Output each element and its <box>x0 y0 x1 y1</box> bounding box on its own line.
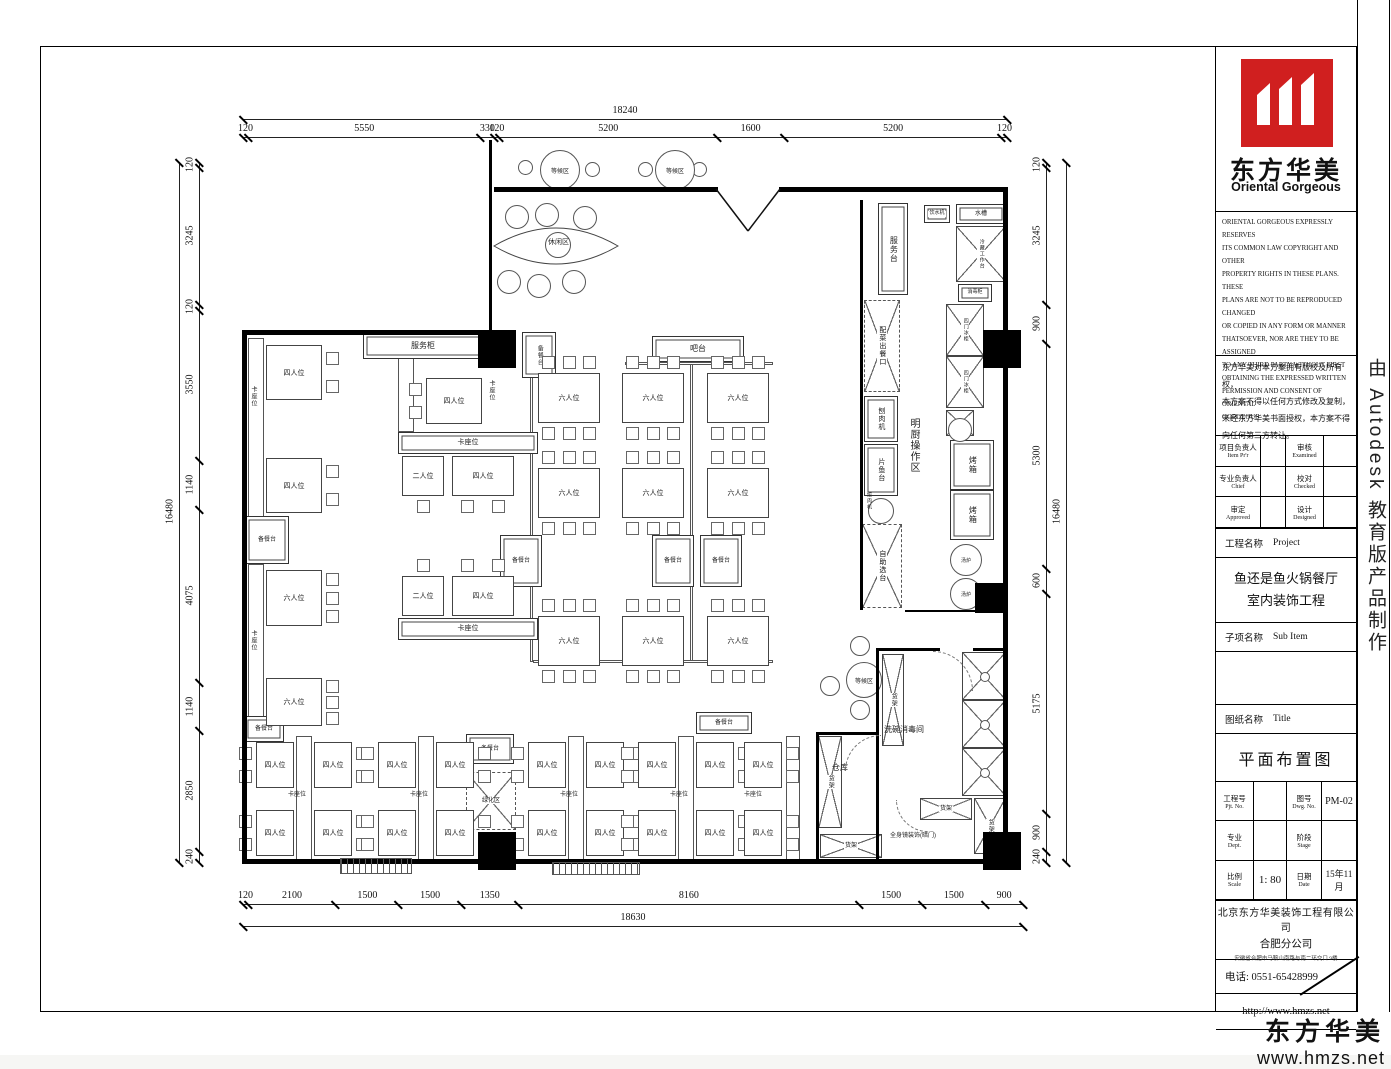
chair <box>647 427 660 440</box>
field-examined: 审核Examined <box>1286 436 1324 467</box>
counter: 消毒柜 <box>958 284 992 302</box>
field-approved-value <box>1261 497 1286 528</box>
counter: 备餐台 <box>696 712 752 734</box>
chair <box>621 770 634 783</box>
room-label: 卡座位 <box>249 386 258 407</box>
table: 四人位 <box>314 810 352 856</box>
stool-icon <box>585 162 600 177</box>
field-stage-value <box>1322 821 1356 860</box>
field-scale: 比例Scale <box>1216 861 1254 900</box>
oriental-gorgeous-logo-icon <box>1241 59 1333 147</box>
equipment-dashed: 自助选台 <box>862 524 902 608</box>
counter-label: 卡座位 <box>457 625 480 633</box>
dim-line <box>243 926 1023 927</box>
copyright-chinese: 东方华美对本方案拥有版权及所有权， 本方案不得以任何方式修改及复制， 未经东方华… <box>1216 356 1356 436</box>
footer-brand: 东方华美 www.hmzs.net <box>1185 1012 1385 1069</box>
counter: 备餐台 <box>652 535 694 587</box>
field-stage: 阶段Stage <box>1287 821 1322 860</box>
chair <box>326 380 339 393</box>
chair <box>563 599 576 612</box>
stool-icon <box>948 418 972 442</box>
chair <box>647 670 660 683</box>
chair <box>626 670 639 683</box>
chair <box>621 815 634 828</box>
equipment-box: 货架 <box>818 736 842 828</box>
dim-label: 120 <box>1032 139 1043 189</box>
dim-label: 18630 <box>608 912 658 923</box>
equipment-box: 货架 <box>820 834 882 858</box>
dim-line <box>243 137 1007 138</box>
counter: 备餐台 <box>700 535 742 587</box>
chair <box>409 383 422 396</box>
table: 四人位 <box>378 742 416 788</box>
counter-label: 吧台 <box>689 345 707 354</box>
chair <box>563 451 576 464</box>
chair <box>542 427 555 440</box>
field-checked: 校对Checked <box>1286 467 1324 498</box>
table: 四人位 <box>696 742 734 788</box>
footer-brand-url: www.hmzs.net <box>1185 1048 1385 1069</box>
field-checked-value <box>1324 467 1356 498</box>
chair <box>667 427 680 440</box>
counter-label: 服务柜 <box>410 342 436 351</box>
chair <box>361 770 374 783</box>
field-pjt-no-value <box>1254 782 1287 821</box>
counter-label: 服务台 <box>888 236 899 263</box>
room-label: 卡座位 <box>487 380 496 401</box>
leaf-planter-icon <box>492 224 620 268</box>
structural-column <box>983 330 1021 368</box>
chair <box>511 770 524 783</box>
equipment-box <box>962 700 1006 748</box>
chair <box>583 427 596 440</box>
dim-label: 8160 <box>664 890 714 901</box>
table: 六人位 <box>538 468 600 518</box>
field-dept-value <box>1254 821 1287 860</box>
chair <box>542 599 555 612</box>
counter: 备餐台 <box>522 332 556 378</box>
equipment-dashed-label: 自助选台 <box>877 550 887 582</box>
bench-seat <box>418 736 434 860</box>
wall <box>779 187 1008 192</box>
chair <box>409 406 422 419</box>
project-label-row: 工程名称Project <box>1216 529 1356 558</box>
equipment-box: 四门冰柜 <box>946 356 984 408</box>
chair <box>542 670 555 683</box>
field-item-value <box>1261 436 1286 467</box>
table: 四人位 <box>744 810 782 856</box>
company-section: 北京东方华美装饰工程有限公司 合肥分公司 安徽省合肥市马鞍山南路与南二环交口 9… <box>1216 901 1356 960</box>
table: 六人位 <box>707 373 769 423</box>
structural-column <box>983 832 1021 870</box>
stool-icon <box>638 162 653 177</box>
door-swing-arc <box>845 735 881 771</box>
counter-label: 备餐台 <box>254 726 274 733</box>
counter-label: 卡座位 <box>457 439 480 447</box>
counter-label: 饮水机 <box>928 211 945 217</box>
entrance-mat <box>340 858 412 874</box>
chair <box>626 451 639 464</box>
counter-label: 烤箱 <box>967 506 978 524</box>
dim-line <box>179 162 180 862</box>
faucet-icon <box>980 720 990 730</box>
chair <box>542 356 555 369</box>
chair <box>752 427 765 440</box>
chair <box>478 747 491 760</box>
chair <box>478 770 491 783</box>
dim-line <box>1046 162 1047 862</box>
dim-label: 2100 <box>267 890 317 901</box>
counter: 卡座位 <box>398 432 538 454</box>
dim-label: 4075 <box>185 570 196 620</box>
wall <box>816 732 878 735</box>
chair <box>711 451 724 464</box>
table: 六人位 <box>707 468 769 518</box>
counter-label: 备餐台 <box>257 537 277 544</box>
logo-section: 东方华美 Oriental Gorgeous <box>1216 47 1356 212</box>
chair <box>732 356 745 369</box>
chair <box>667 599 680 612</box>
equipment-box-label: 绿化区 <box>481 798 501 805</box>
equipment-box-label: 货架 <box>889 693 898 707</box>
chair <box>647 356 660 369</box>
table: 四人位 <box>436 742 474 788</box>
room-label: 卡座位 <box>410 789 428 798</box>
chair <box>417 500 430 513</box>
chair <box>647 599 660 612</box>
wall <box>876 648 940 651</box>
counter: 吧台 <box>652 336 744 362</box>
field-examined-value <box>1324 436 1356 467</box>
company-name: 北京东方华美装饰工程有限公司 <box>1216 904 1356 934</box>
chair <box>711 670 724 683</box>
table: 四人位 <box>696 810 734 856</box>
chair <box>786 838 799 851</box>
dim-label: 3245 <box>185 211 196 261</box>
chair <box>667 670 680 683</box>
chair <box>732 451 745 464</box>
room-label: 洗碗消毒间 <box>884 724 924 735</box>
structural-column <box>975 583 1005 613</box>
counter-label: 备餐台 <box>714 720 734 727</box>
field-dept: 专业Dept. <box>1216 821 1254 860</box>
faucet-icon <box>980 672 990 682</box>
table: 四人位 <box>426 378 482 424</box>
chair <box>478 815 491 828</box>
chair <box>326 680 339 693</box>
chair <box>563 522 576 535</box>
chair <box>511 747 524 760</box>
sheet-label-row: 图纸名称Title <box>1216 705 1356 734</box>
drawing-sheet: { "title_block": { "logo_cn": "东方华美", "l… <box>0 0 1391 1055</box>
chair <box>647 522 660 535</box>
room-label: 全身镜装饰(暗门) <box>890 830 936 839</box>
table: 六人位 <box>538 616 600 666</box>
counter-label: 备餐台 <box>711 558 731 565</box>
company-branch: 合肥分公司 <box>1216 936 1356 951</box>
structural-column <box>478 330 516 368</box>
chair <box>752 599 765 612</box>
stool-icon <box>850 700 870 720</box>
table: 四人位 <box>436 810 474 856</box>
equipment-box-label: 货架 <box>844 843 858 850</box>
chair <box>752 356 765 369</box>
chair <box>626 599 639 612</box>
counter: 饮水机 <box>924 205 950 223</box>
chair <box>752 670 765 683</box>
field-designed: 设计Designed <box>1286 497 1324 528</box>
room-label: 卡座位 <box>744 789 762 798</box>
dim-label: 1140 <box>185 681 196 731</box>
chair <box>732 427 745 440</box>
chair <box>563 356 576 369</box>
dim-label: 120 <box>185 139 196 189</box>
table: 四人位 <box>314 742 352 788</box>
chair <box>667 522 680 535</box>
dim-line <box>243 119 1007 120</box>
chair <box>583 522 596 535</box>
counter: 刨肉机 <box>864 396 898 442</box>
chair <box>361 838 374 851</box>
faucet-icon <box>980 768 990 778</box>
table: 四人位 <box>528 742 566 788</box>
counter-label: 备餐台 <box>663 558 683 565</box>
equipment-box: 四门冰柜 <box>946 304 984 356</box>
equipment-box <box>962 748 1006 796</box>
chair <box>563 427 576 440</box>
table: 四人位 <box>256 810 294 856</box>
dim-label: 1350 <box>465 890 515 901</box>
table: 四人位 <box>256 742 294 788</box>
table: 六人位 <box>622 468 684 518</box>
dim-label: 120 <box>221 890 271 901</box>
title-block: 东方华美 Oriental Gorgeous ORIENTAL GORGEOUS… <box>1215 46 1357 1012</box>
table: 四人位 <box>638 810 676 856</box>
chair <box>752 451 765 464</box>
dim-label: 5200 <box>868 123 918 134</box>
chair <box>583 356 596 369</box>
room-label: 卡座位 <box>560 789 578 798</box>
chair <box>711 427 724 440</box>
equipment-box-label: 货架 <box>939 806 953 813</box>
wall <box>242 330 247 864</box>
chair <box>563 670 576 683</box>
chair <box>621 838 634 851</box>
dim-label: 120 <box>185 282 196 332</box>
chair <box>786 747 799 760</box>
wall <box>816 732 819 862</box>
chair <box>326 712 339 725</box>
room-label: 绞肉机 <box>866 492 873 510</box>
stool-icon <box>562 270 586 294</box>
chair <box>711 599 724 612</box>
chair <box>492 559 505 572</box>
chair <box>621 747 634 760</box>
stool-icon <box>518 160 533 175</box>
counter: 服务台 <box>878 203 908 295</box>
round-table: 等候区 <box>540 150 580 190</box>
round-table: 汤炉 <box>950 544 982 576</box>
dim-label: 16480 <box>165 487 176 537</box>
dim-label: 3550 <box>185 360 196 410</box>
chair <box>647 451 660 464</box>
room-label: 卡座位 <box>288 789 306 798</box>
chair <box>326 696 339 709</box>
dim-label: 16480 <box>1052 487 1063 537</box>
field-dwg-no-value: PM-02 <box>1322 782 1356 821</box>
number-grid: 工程号Pjt. No. 图号Dwg. No. PM-02 专业Dept. 阶段S… <box>1216 782 1356 901</box>
counter-label: 水槽 <box>974 211 988 218</box>
equipment-box-label: 四门冰柜 <box>961 318 969 342</box>
dim-label: 900 <box>979 890 1029 901</box>
table: 四人位 <box>638 742 676 788</box>
chair <box>732 670 745 683</box>
bench-seat <box>530 362 533 662</box>
table: 四人位 <box>266 458 322 513</box>
door-swing-arc <box>896 800 928 832</box>
counter: 片鱼台 <box>864 444 898 496</box>
table: 四人位 <box>744 742 782 788</box>
stool-icon <box>820 676 840 696</box>
chair <box>461 500 474 513</box>
stool-icon <box>497 270 521 294</box>
equipment-dashed-label: 配菜出餐口 <box>877 326 887 366</box>
entrance-door-icon <box>714 188 782 234</box>
dim-label: 5550 <box>339 123 389 134</box>
dim-label: 600 <box>1032 556 1043 606</box>
drawing-title: 平面布置图 <box>1216 734 1356 782</box>
chair <box>511 815 524 828</box>
counter: 服务柜 <box>363 333 483 359</box>
chair <box>583 670 596 683</box>
dim-line <box>243 904 1023 905</box>
dim-label: 120 <box>221 123 271 134</box>
dim-label: 1140 <box>185 460 196 510</box>
structural-column <box>478 832 516 870</box>
table: 四人位 <box>586 810 624 856</box>
dim-label: 1500 <box>929 890 979 901</box>
dim-label: 120 <box>472 123 522 134</box>
equipment-dashed: 配菜出餐口 <box>864 300 900 392</box>
chair <box>732 599 745 612</box>
chair <box>492 500 505 513</box>
chair <box>326 493 339 506</box>
field-date: 日期Date <box>1287 861 1322 900</box>
room-label: 卡座位 <box>670 789 688 798</box>
bench-seat <box>296 736 312 860</box>
dim-label: 240 <box>185 831 196 881</box>
wall <box>494 187 718 192</box>
bench-seat <box>678 736 694 860</box>
table: 四人位 <box>378 810 416 856</box>
chair <box>583 451 596 464</box>
table: 六人位 <box>266 570 322 626</box>
table: 四人位 <box>586 742 624 788</box>
dim-label: 1600 <box>726 123 776 134</box>
counter: 烤箱 <box>950 440 994 490</box>
room-label: 卡座位 <box>249 630 258 651</box>
counter: 卡座位 <box>398 618 538 640</box>
chair <box>326 610 339 623</box>
bench-seat <box>568 736 584 860</box>
dim-label: 1500 <box>405 890 455 901</box>
room-label: 明厨操作区 <box>906 418 921 473</box>
chair <box>361 747 374 760</box>
chair <box>361 815 374 828</box>
project-name: 鱼还是鱼火锅餐厅 室内装饰工程 <box>1216 558 1356 623</box>
chair <box>732 522 745 535</box>
subitem-label-row: 子项名称Sub Item <box>1216 623 1356 652</box>
subitem-value <box>1216 652 1356 705</box>
table: 六人位 <box>538 373 600 423</box>
dim-label: 5300 <box>1032 430 1043 480</box>
chair <box>326 592 339 605</box>
table: 六人位 <box>266 678 322 726</box>
wall <box>973 648 1006 651</box>
wall <box>1003 187 1008 863</box>
chair <box>626 356 639 369</box>
counter-label: 刨肉机 <box>876 407 886 431</box>
stool-icon <box>527 274 551 298</box>
field-dwg-no: 图号Dwg. No. <box>1287 782 1322 821</box>
chair <box>786 770 799 783</box>
bench-seat <box>690 362 693 662</box>
table: 六人位 <box>707 616 769 666</box>
counter: 水槽 <box>956 204 1006 224</box>
chair <box>752 522 765 535</box>
table: 二人位 <box>402 576 444 616</box>
chair <box>711 356 724 369</box>
chair <box>542 451 555 464</box>
chair <box>667 356 680 369</box>
entrance-mat <box>552 862 640 875</box>
chair <box>626 427 639 440</box>
dim-label: 2850 <box>185 766 196 816</box>
chair <box>326 465 339 478</box>
table: 四人位 <box>452 456 514 496</box>
equipment-box-label: 冷藏工作台 <box>977 239 985 269</box>
counter-label: 片鱼台 <box>876 458 886 482</box>
equipment-box-label: 四门冰柜 <box>961 370 969 394</box>
footer-brand-name: 东方华美 <box>1185 1012 1385 1048</box>
dim-label: 900 <box>1032 299 1043 349</box>
field-item: 项目负责人Item Pr'r <box>1216 436 1261 467</box>
field-date-value: 15年11月 <box>1322 861 1356 900</box>
copyright-english: ORIENTAL GORGEOUS EXPRESSLY RESERVES ITS… <box>1216 212 1356 356</box>
field-chief-value <box>1261 467 1286 498</box>
field-designed-value <box>1324 497 1356 528</box>
dim-label: 1500 <box>866 890 916 901</box>
stool-icon <box>850 636 870 656</box>
dim-label: 240 <box>1032 831 1043 881</box>
table: 四人位 <box>266 345 322 400</box>
logo-english-name: Oriental Gorgeous <box>1216 180 1356 194</box>
equipment-box-label: 货架 <box>986 819 995 833</box>
field-scale-value: 1: 80 <box>1254 861 1287 900</box>
chair <box>326 352 339 365</box>
chair <box>626 522 639 535</box>
equipment-box: 冷藏工作台 <box>956 226 1006 282</box>
table: 六人位 <box>622 373 684 423</box>
field-approved: 审定Approved <box>1216 497 1261 528</box>
counter: 备餐台 <box>245 516 289 564</box>
field-pjt-no: 工程号Pjt. No. <box>1216 782 1254 821</box>
counter: 烤箱 <box>950 490 994 540</box>
dim-label: 120 <box>979 123 1029 134</box>
autodesk-education-strip: 由 Autodesk 教育版产品制作 <box>1357 0 1390 1012</box>
dim-label: 18240 <box>600 105 650 116</box>
chair <box>542 522 555 535</box>
